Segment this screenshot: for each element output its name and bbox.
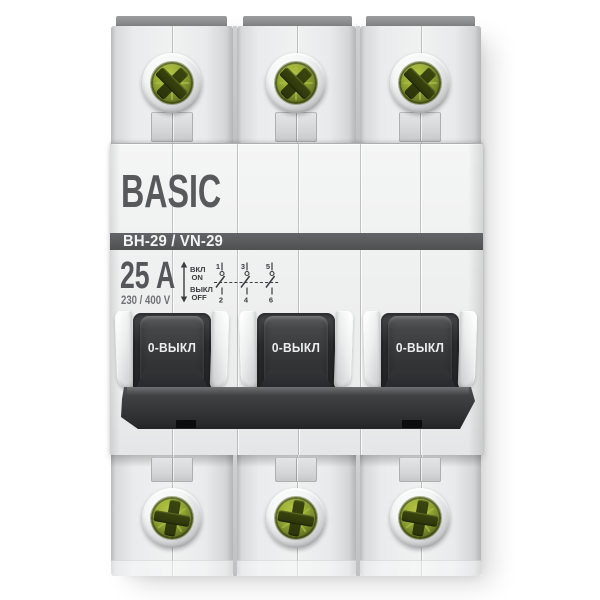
tie-bar-notch: [402, 420, 422, 428]
toggle-guide-right: [210, 311, 230, 390]
model-band: ВН-29 / VN-29: [110, 233, 483, 250]
terminal-number: 4: [244, 296, 249, 305]
tie-bar-notch: [176, 420, 196, 428]
screw-cross-icon: [396, 494, 445, 543]
off-label-en: OFF: [192, 293, 208, 302]
terminal-number: 2: [219, 296, 223, 305]
base-strip: [111, 560, 233, 576]
toggle-guide-left: [115, 311, 135, 390]
fascia: BASIC ВН-29 / VN-29 25 A 230 / 400 V ВКЛ…: [110, 143, 483, 455]
product-photo: BASIC ВН-29 / VN-29 25 A 230 / 400 V ВКЛ…: [0, 0, 600, 600]
terminal-screw-icon: [142, 53, 202, 113]
terminal-screw-icon: [142, 488, 202, 548]
terminal-tab: [399, 457, 441, 482]
toggle-lever[interactable]: 0-ВЫКЛ: [264, 316, 328, 392]
on-off-legend-icon: ВКЛ ON ВЫКЛ OFF: [176, 259, 286, 305]
arrow-down-head: [181, 297, 187, 303]
base-strip: [237, 560, 356, 576]
terminal-tab: [275, 457, 317, 482]
voltage-rating: 230 / 400 V: [121, 294, 170, 306]
terminal-screw-icon: [390, 53, 450, 113]
toggle-lever[interactable]: 0-ВЫКЛ: [140, 316, 204, 392]
toggle-label: 0-ВЫКЛ: [267, 340, 326, 355]
terminal-screw-icon: [266, 53, 326, 113]
screw-cross-icon: [272, 494, 321, 543]
toggle-guide-right: [458, 311, 478, 390]
terminal-number: 6: [269, 296, 273, 305]
toggle-guide-left: [239, 311, 259, 390]
toggle-guide-left: [363, 311, 383, 390]
terminal-tab: [275, 112, 317, 142]
on-label-en: ON: [192, 273, 203, 282]
arrow-up-head: [181, 262, 187, 268]
model-label: ВН-29 / VN-29: [123, 233, 223, 250]
base-strip: [360, 560, 481, 576]
toggle-guide-right: [334, 311, 354, 390]
terminal-tab: [151, 457, 193, 482]
toggle-label: 0-ВЫКЛ: [143, 340, 202, 355]
current-rating: 25 A: [120, 257, 175, 295]
handle-tie-bar[interactable]: [121, 387, 475, 429]
terminal-tab: [399, 112, 441, 142]
terminal-number: 5: [266, 262, 270, 271]
toggle-label: 0-ВЫКЛ: [391, 340, 450, 355]
brand-logo: BASIC: [121, 168, 221, 214]
switch-disconnector-device: BASIC ВН-29 / VN-29 25 A 230 / 400 V ВКЛ…: [110, 16, 483, 578]
terminal-number: 1: [216, 262, 220, 271]
terminal-tab: [151, 112, 193, 142]
terminal-number: 3: [241, 262, 245, 271]
terminal-screw-icon: [266, 488, 326, 548]
toggle-lever[interactable]: 0-ВЫКЛ: [388, 316, 452, 392]
screw-cross-icon: [148, 494, 197, 543]
terminal-screw-icon: [390, 488, 450, 548]
